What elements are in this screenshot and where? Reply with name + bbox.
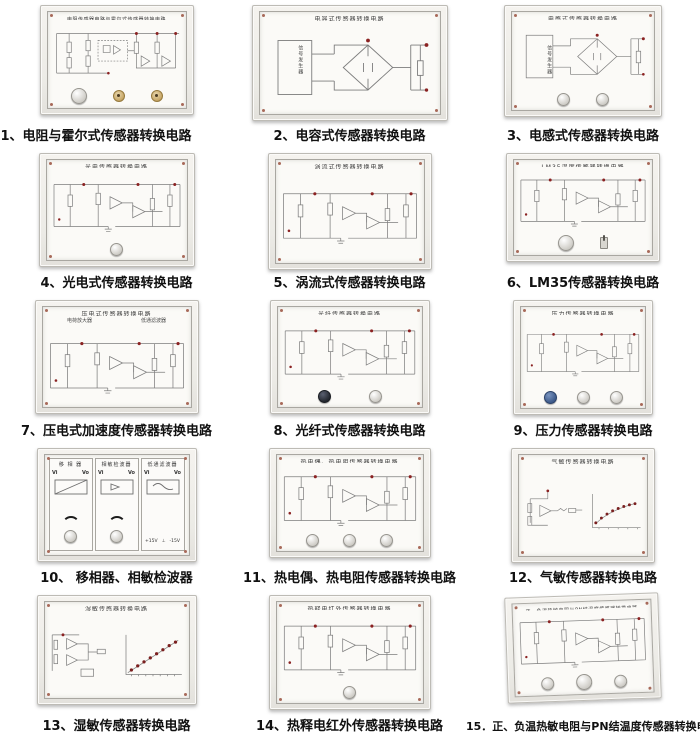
circuit-board-photo-6: LM35温度传感器转换电路: [506, 153, 660, 262]
panel-cell-9: 压力传感器转换电路 9、压力传感器转换电路: [466, 295, 700, 443]
knob: [596, 93, 609, 106]
knob: [610, 391, 623, 404]
panel-cell-4: 光电传感器转换电路 4、光电式传感器转换电路: [0, 148, 233, 296]
gas-response-curve: [519, 464, 647, 556]
socket: [113, 90, 125, 102]
panel-caption: 4、光电式传感器转换电路: [0, 276, 233, 292]
vi-label: Vi: [144, 470, 150, 476]
panel-cell-2: 电容式传感器转换电路 信号发生器 2、电容式传感器转换电路: [233, 0, 466, 148]
knob: [558, 235, 574, 251]
lowpass-filter-box: [143, 478, 183, 496]
control-row: [47, 243, 187, 256]
circuit-board-photo-9: 压力传感器转换电路: [513, 300, 653, 415]
circuit-schematic: [47, 168, 187, 243]
vo-label: Vo: [174, 470, 181, 476]
knob: [318, 390, 331, 403]
circuit-board-photo-4: 光电传感器转换电路: [39, 153, 195, 267]
circuit-schematic: [43, 324, 191, 408]
circuit-schematic: [514, 167, 652, 234]
panel-caption: 2、电容式传感器转换电路: [233, 129, 466, 145]
circuit-schematic: [260, 21, 440, 114]
knob: [577, 391, 590, 404]
circuit-board-photo-1: 电阻传感器电路与霍尔式传感器转换电路: [40, 5, 194, 115]
knob: [110, 243, 123, 256]
circuit-schematic: [278, 315, 422, 390]
circuit-board-photo-11: 热电偶、热电阻传感器转换电路: [269, 448, 431, 558]
panel-caption: 1、电阻与霍尔式传感器转换电路: [0, 129, 234, 145]
circuit-board-photo-12: 气敏传感器转换电路: [511, 448, 655, 563]
phase-shifter-box: [51, 478, 91, 496]
panel-cell-15: 正、负温热敏电阻与PN结温度传感器转换电路 15．正、负温热敏电阻与PN结温度传…: [466, 590, 700, 738]
knob: [369, 390, 382, 403]
charge-amp-label: 电荷放大器: [67, 317, 92, 324]
knob: [541, 677, 554, 690]
phase-detector-box: [97, 478, 137, 496]
vi-label: Vi: [52, 470, 58, 476]
knob: [380, 534, 393, 547]
panel-cell-6: LM35温度传感器转换电路 6、LM35传感器转换电路: [466, 148, 700, 296]
knob: [576, 674, 593, 691]
neg-supply-label: -15V: [170, 539, 180, 544]
panel-cell-7: 压电式传感器转换电路 电荷放大器 低通滤波器 7、压电式加速度传感器转换电路: [0, 295, 233, 443]
knob: [343, 534, 356, 547]
panel-caption: 13、湿敏传感器转换电路: [0, 719, 233, 735]
circuit-board-photo-14: 热释电红外传感器转换电路: [269, 595, 431, 710]
circuit-schematic: [276, 169, 424, 263]
phase-detector-section: 相敏检波器 Vi Vo: [95, 458, 139, 551]
toggle-switch: [600, 237, 608, 249]
lpf-label: 低通滤波器: [141, 317, 166, 324]
control-row: [278, 390, 422, 403]
panel-caption: 10、 移相器、相敏检波器: [0, 571, 233, 587]
panel-cell-5: 涡流式传感器转换电路 5、涡流式传感器转换电路: [233, 148, 466, 296]
panel-caption: 14、热释电红外传感器转换电路: [233, 719, 466, 735]
knob: [306, 534, 319, 547]
panel-caption: 6、LM35传感器转换电路: [466, 276, 700, 292]
control-row: [512, 93, 654, 106]
knob: [544, 391, 557, 404]
knob-arc: [62, 516, 80, 527]
panel-caption: 11、热电偶、热电阻传感器转换电路: [233, 571, 466, 587]
catalog-grid: 电阻传感器电路与霍尔式传感器转换电路 1、电阻与霍尔式传感器转换电路 电容式传感…: [0, 0, 700, 738]
panel-caption: 9、压力传感器转换电路: [466, 424, 700, 440]
panel-cell-13: 湿敏传感器转换电路 13、湿敏传感器转换电路: [0, 590, 233, 738]
panel-cell-12: 气敏传感器转换电路 12、气敏传感器转换电路: [466, 443, 700, 591]
control-row: [515, 672, 653, 693]
section-title: 相敏检波器: [101, 461, 131, 468]
circuit-schematic: [277, 610, 423, 686]
knob: [343, 686, 356, 699]
control-row: [521, 391, 645, 404]
circuit-schematic: [512, 20, 654, 93]
panel-caption: 12、气敏传感器转换电路: [466, 571, 700, 587]
circuit-board-photo-2: 电容式传感器转换电路 信号发生器: [252, 5, 448, 121]
knob: [71, 88, 87, 104]
section-title: 移 相 器: [59, 461, 82, 468]
panel-cell-1: 电阻传感器电路与霍尔式传感器转换电路 1、电阻与霍尔式传感器转换电路: [0, 0, 233, 148]
power-terminals: +15V ⊥ -15V: [145, 539, 180, 544]
section-title: 低通滤波器: [147, 461, 177, 468]
panel-caption: 5、涡流式传感器转换电路: [233, 276, 466, 292]
panel-cell-3: 电感式传感器转换电路 信号发生器 3、电感式传感器转换电路: [466, 0, 700, 148]
panel-caption: 7、压电式加速度传感器转换电路: [0, 424, 233, 440]
vi-label: Vi: [98, 470, 104, 476]
circuit-board-photo-7: 压电式传感器转换电路 电荷放大器 低通滤波器: [35, 300, 199, 414]
vo-label: Vo: [128, 470, 135, 476]
knob: [614, 674, 627, 687]
panel-cell-14: 热释电红外传感器转换电路 14、热释电红外传感器转换电路: [233, 590, 466, 738]
panel-cell-8: 光纤传感器转换电路 8、光纤式传感器转换电路: [233, 295, 466, 443]
signal-generator-label: 信号发生器: [297, 45, 304, 75]
panel-caption: 8、光纤式传感器转换电路: [233, 424, 466, 440]
socket: [151, 90, 163, 102]
panel-cell-11: 热电偶、热电阻传感器转换电路 11、热电偶、热电阻传感器转换电路: [233, 443, 466, 591]
control-row: [277, 534, 423, 547]
knob: [110, 530, 123, 543]
sub-labels: 电荷放大器 低通滤波器: [43, 317, 191, 324]
lowpass-filter-section: 低通滤波器 Vi Vo +15V ⊥ -15V: [141, 458, 185, 551]
ground-icon: ⊥: [162, 539, 166, 544]
board-sections: 移 相 器 Vi Vo 相敏检波器: [49, 458, 185, 551]
circuit-board-photo-5: 涡流式传感器转换电路: [268, 153, 432, 270]
circuit-schematic: [521, 315, 645, 391]
control-row: [48, 88, 186, 104]
knob: [557, 93, 570, 106]
phase-shifter-section: 移 相 器 Vi Vo: [49, 458, 93, 551]
circuit-schematic: [277, 463, 423, 534]
circuit-board-photo-13: 湿敏传感器转换电路: [37, 595, 197, 705]
signal-generator-label: 信号发生器: [546, 45, 553, 75]
circuit-schematic: [48, 20, 186, 88]
knob-with-arc: [62, 516, 80, 547]
circuit-board-photo-3: 电感式传感器转换电路 信号发生器: [504, 5, 662, 117]
pos-supply-label: +15V: [145, 539, 158, 544]
panel-cell-10: 移 相 器 Vi Vo 相敏检波器: [0, 443, 233, 591]
circuit-board-photo-15: 正、负温热敏电阻与PN结温度传感器转换电路: [504, 593, 662, 704]
humidity-response-line: [45, 611, 189, 698]
circuit-board-photo-8: 光纤传感器转换电路: [270, 300, 430, 414]
knob-arc: [108, 516, 126, 527]
circuit-schematic: [513, 607, 653, 676]
circuit-board-photo-10: 移 相 器 Vi Vo 相敏检波器: [37, 448, 197, 562]
control-row: [277, 686, 423, 699]
control-row: [514, 235, 652, 251]
knob: [64, 530, 77, 543]
panel-caption: 15．正、负温热敏电阻与PN结温度传感器转换电路: [466, 719, 700, 735]
panel-caption: 3、电感式传感器转换电路: [466, 129, 700, 145]
vo-label: Vo: [82, 470, 89, 476]
knob-with-arc: [108, 516, 126, 547]
board-title: 压电式传感器转换电路: [43, 311, 191, 315]
